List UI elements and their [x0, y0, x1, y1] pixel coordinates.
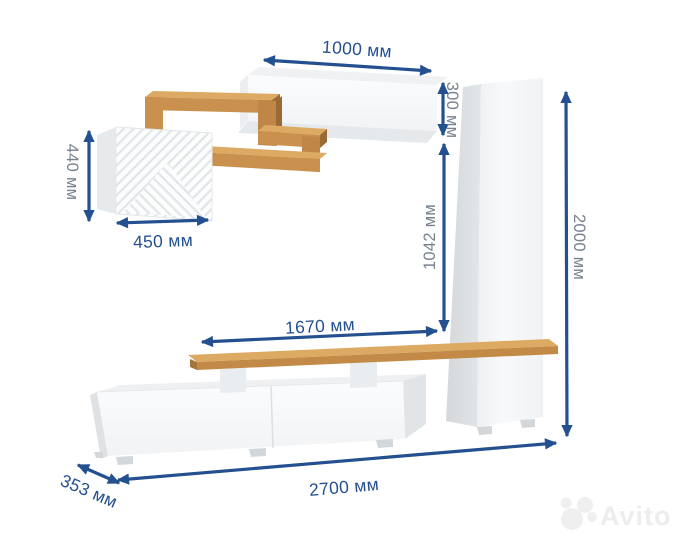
- dim-arrow-2000: [566, 92, 567, 436]
- tv-bench: [90, 374, 426, 465]
- tall-cabinet-front: [477, 78, 543, 427]
- dim-arrow-450: [117, 220, 208, 223]
- dim-label-300: 300 мм: [443, 82, 461, 139]
- tall-cabinet-foot: [520, 419, 535, 428]
- dim-label-450: 450 мм: [133, 230, 194, 252]
- bench-foot: [376, 439, 393, 448]
- dim-label-2700: 2700 мм: [308, 474, 379, 500]
- product-dimension-image: 1000 мм 300 мм 1042 мм 2000 мм 440 мм 45…: [0, 0, 675, 540]
- dim-label-353: 353 мм: [58, 470, 121, 512]
- bench-foot: [116, 456, 133, 465]
- furniture-diagram: 1000 мм 300 мм 1042 мм 2000 мм 440 мм 45…: [0, 0, 675, 540]
- avito-wordmark: Avito: [600, 501, 672, 531]
- dim-label-1042: 1042 мм: [421, 204, 439, 270]
- square-wall-cabinet: [97, 127, 212, 221]
- bench-foot: [94, 452, 103, 458]
- avito-watermark: Avito: [561, 497, 672, 531]
- shelf-support: [350, 362, 377, 388]
- tall-cabinet-foot: [477, 426, 492, 435]
- bench-front: [97, 381, 405, 456]
- bench-foot: [249, 448, 266, 457]
- bench-right-side: [403, 374, 426, 439]
- dim-label-1000: 1000 мм: [321, 37, 392, 62]
- avito-logo-icon: [561, 497, 598, 530]
- dim-label-1670: 1670 мм: [285, 314, 356, 338]
- square-cabinet-side: [97, 127, 116, 214]
- dim-label-440: 440 мм: [63, 144, 81, 201]
- shelf-support: [220, 368, 246, 393]
- dim-label-2000: 2000 мм: [570, 214, 588, 280]
